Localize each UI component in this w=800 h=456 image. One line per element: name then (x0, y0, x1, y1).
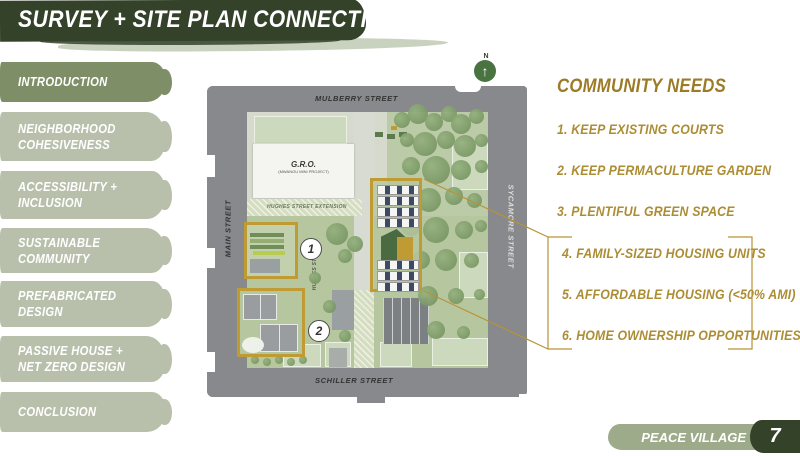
highlight-garden (244, 222, 298, 279)
tree (469, 109, 484, 124)
tree (467, 193, 482, 208)
compass-n-label: N (474, 53, 498, 60)
tree (309, 272, 321, 284)
tree (437, 131, 455, 149)
sidebar-item-label: INTRODUCTION (18, 74, 107, 90)
community-needs-heading: COMMUNITY NEEDS (557, 76, 726, 98)
street-label-sycamore: SYCAMORE STREET (507, 185, 516, 265)
tree (475, 220, 487, 232)
curb-cut (203, 155, 215, 177)
sidebar-item-neighborhood-cohesiveness[interactable]: NEIGHBORHOOD COHESIVENESS (0, 112, 166, 161)
sidebar-item-sustainable-community[interactable]: SUSTAINABLE COMMUNITY (0, 228, 166, 273)
need-item-2: 2. KEEP PERMACULTURE GARDEN (557, 162, 771, 178)
street-label-main: MAIN STREET (224, 194, 233, 264)
site-plan-map: G.R.O. (MWANGU MINI PROJECT) HUGHES STRE… (197, 52, 542, 402)
gro-subtitle: (MWANGU MINI PROJECT) (253, 169, 354, 174)
sidebar-item-label: ACCESSIBILITY + INCLUSION (18, 179, 117, 211)
need-item-3: 3. PLENTIFUL GREEN SPACE (557, 203, 735, 219)
tree (338, 249, 352, 263)
tree (475, 134, 488, 147)
hughes-extension-label: HUGHES STREET EXTENSION (267, 204, 347, 210)
tree (451, 160, 471, 180)
basketball-court (243, 294, 277, 320)
sidebar-item-conclusion[interactable]: CONCLUSION (0, 392, 166, 432)
sidebar-item-passive-house-net-zero[interactable]: PASSIVE HOUSE + NET ZERO DESIGN (0, 336, 166, 382)
tree (464, 253, 479, 268)
tree (400, 133, 414, 147)
street-label-mulberry: MULBERRY STREET (315, 94, 398, 103)
need-item-5: 5. AFFORDABLE HOUSING (<50% AMI) (562, 286, 796, 302)
street-stub (357, 395, 385, 403)
marker-number: 2 (316, 324, 323, 338)
map-marker-2: 2 (308, 320, 330, 342)
curb-cut (203, 248, 215, 268)
building (254, 116, 347, 144)
footer-project-label: PEACE VILLAGE (608, 424, 762, 450)
page-number: 7 (769, 425, 780, 448)
page-number-badge: 7 (750, 420, 800, 453)
sidebar-item-prefabricated-design[interactable]: PREFABRICATED DESIGN (0, 281, 166, 327)
tree (474, 289, 485, 300)
sidebar-item-label: PREFABRICATED DESIGN (18, 288, 116, 320)
curb-cut (203, 352, 215, 372)
tree (323, 300, 336, 313)
compass-arrow-icon: ↑ (474, 60, 496, 82)
tree (402, 157, 420, 175)
tree (457, 326, 470, 339)
tree (251, 356, 259, 364)
tree (451, 114, 471, 134)
north-compass: N ↑ (474, 53, 498, 85)
tree (422, 156, 450, 184)
tree (299, 356, 307, 364)
map-marker-1: 1 (300, 238, 322, 260)
street-label-schiller: SCHILLER STREET (315, 376, 393, 385)
tree (455, 221, 473, 239)
need-item-1: 1. KEEP EXISTING COURTS (557, 121, 724, 137)
sidebar-item-label: SUSTAINABLE COMMUNITY (18, 235, 100, 267)
tree (454, 135, 476, 157)
footer-label-text: PEACE VILLAGE (641, 430, 746, 445)
tree (413, 132, 437, 156)
tree (445, 187, 463, 205)
tree (448, 288, 464, 304)
tree (339, 330, 351, 342)
gro-name: G.R.O. (253, 160, 354, 169)
sidebar-item-label: NEIGHBORHOOD COHESIVENESS (18, 121, 116, 153)
page-title: SURVEY + SITE PLAN CONNECTION (18, 6, 399, 34)
basketball-court (260, 324, 298, 352)
need-item-6: 6. HOME OWNERSHIP OPPORTUNITIES (562, 327, 800, 343)
tree (435, 249, 457, 271)
tree (427, 321, 445, 339)
sidebar-item-label: PASSIVE HOUSE + NET ZERO DESIGN (18, 343, 125, 375)
tree (475, 160, 488, 173)
tree (263, 358, 271, 366)
parking-lot (383, 298, 429, 344)
gro-building: G.R.O. (MWANGU MINI PROJECT) (253, 144, 354, 198)
sidebar-item-introduction[interactable]: INTRODUCTION (0, 62, 166, 102)
marker-number: 1 (308, 242, 315, 256)
highlight-housing-units (370, 178, 422, 292)
tree (423, 217, 449, 243)
sidebar-item-label: CONCLUSION (18, 404, 96, 420)
sidebar-item-accessibility-inclusion[interactable]: ACCESSIBILITY + INCLUSION (0, 171, 166, 219)
need-item-4: 4. FAMILY-SIZED HOUSING UNITS (562, 245, 766, 261)
tree (275, 356, 283, 364)
curb-cut (519, 394, 531, 408)
highlight-courts (237, 288, 305, 357)
tree (287, 358, 295, 366)
tree (326, 223, 348, 245)
